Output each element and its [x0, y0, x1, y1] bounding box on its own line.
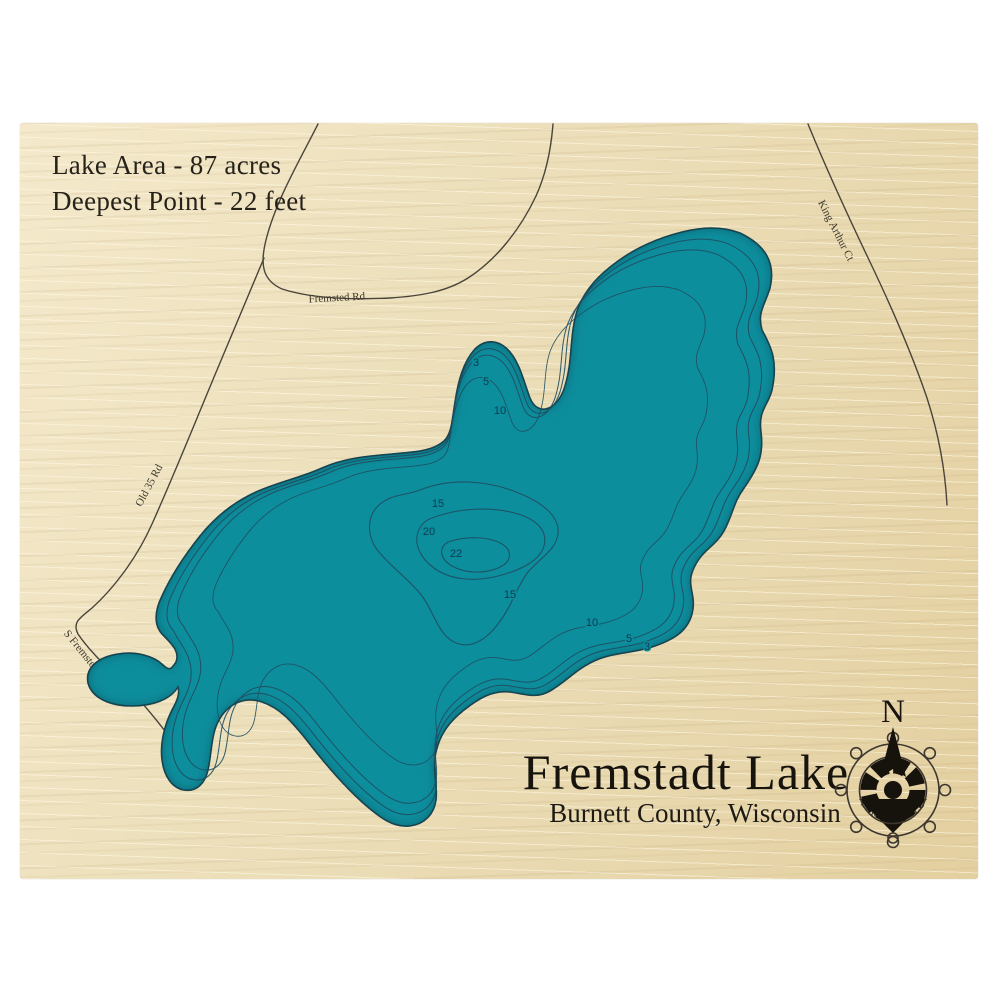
depth-label: 22: [450, 548, 462, 560]
wheel-handle: [851, 748, 862, 759]
lake-area-text: Lake Area - 87 acres: [52, 150, 281, 180]
depth-label: 15: [504, 589, 516, 601]
depth-label: 10: [586, 617, 598, 629]
map-svg: Fremsted Rd King Arthur Ct Old 35 Rd S F…: [0, 0, 1000, 1000]
wheel-handle: [924, 821, 935, 832]
lake-subtitle: Burnett County, Wisconsin: [549, 798, 841, 828]
depth-label: 5: [483, 376, 489, 388]
depth-label: 3: [473, 357, 479, 369]
depth-label: 20: [423, 526, 435, 538]
lake-stats: Lake Area - 87 acres Deepest Point - 22 …: [52, 150, 307, 216]
deepest-point-text: Deepest Point - 22 feet: [52, 186, 307, 216]
wheel-handle: [924, 748, 935, 759]
road-label-old-35: Old 35 Rd: [133, 462, 165, 509]
depth-label: 15: [432, 498, 444, 510]
wheel-handle: [851, 821, 862, 832]
lake-art-print: Fremsted Rd King Arthur Ct Old 35 Rd S F…: [0, 0, 1000, 1000]
road-label-king-arthur: King Arthur Ct: [815, 198, 856, 263]
fremsted-rd-line: [263, 124, 553, 299]
road-label-fremsted: Fremsted Rd: [308, 291, 366, 306]
king-arthur-ct-line: [808, 124, 947, 505]
depth-label: 5: [626, 633, 632, 645]
lake-title: Fremstadt Lake: [523, 744, 849, 800]
wheel-handle: [940, 785, 951, 796]
wheel-hub: [884, 781, 902, 799]
depth-label: 3: [644, 641, 650, 653]
north-label: N: [881, 694, 905, 730]
compass-logo: N LAKE ART LLC: [836, 694, 951, 848]
compass-north-arrow: [880, 727, 906, 777]
depth-label: 10: [494, 405, 506, 417]
